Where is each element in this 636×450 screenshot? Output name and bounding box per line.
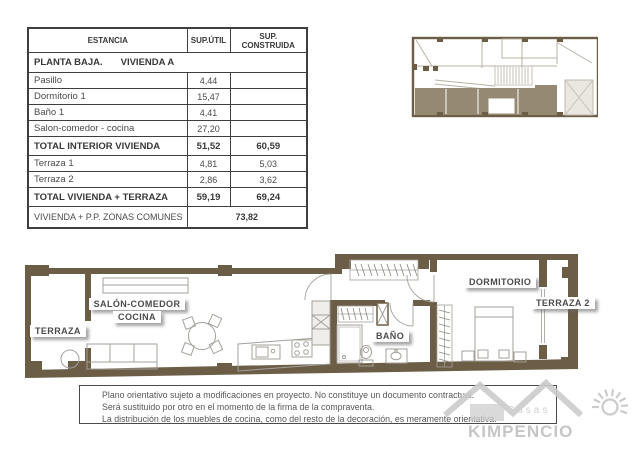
table-row: Salon-comedor - cocina 27,20 [28,121,307,137]
label-salon-line1: SALÓN-COMEDOR [89,298,186,310]
document-page: ESTANCIA SUP.ÚTIL SUP. CONSTRUIDA PLANTA… [0,0,636,450]
sup-util-cell: 15,47 [187,89,230,105]
sup-construida-cell [230,105,307,121]
sup-util-cell: 59,19 [187,188,230,207]
section-title-right: VIVIENDA A [121,57,175,68]
sofa [87,344,157,369]
bedroom-wardrobe [437,305,452,367]
hall-wardrobe-lower [338,306,373,322]
col-header-sup-util: SUP.ÚTIL [187,28,230,53]
sup-util-cell: 27,20 [187,121,230,137]
bathroom-door [390,303,413,326]
room-label-cell: Dormitorio 1 [28,89,187,105]
hall-wardrobe-top [350,260,418,280]
shower [337,325,362,363]
washbasin [386,349,407,363]
room-label-cell: Terraza 2 [28,172,187,188]
living-room-door [305,274,331,300]
shaft [377,303,388,325]
sup-construida-cell [230,121,307,137]
label-bano: BAÑO [371,330,409,342]
area-table: ESTANCIA SUP.ÚTIL SUP. CONSTRUIDA PLANTA… [27,27,308,229]
sup-util-cell: 4,44 [187,73,230,89]
table-row: Pasillo 4,44 [28,73,307,89]
nightstand [462,351,474,361]
disclaimer-line-3: La distribución de los muebles de cocina… [102,413,552,425]
room-label-cell: Salon-comedor - cocina [28,121,187,137]
section-title-left: PLANTA BAJA. [34,57,103,68]
table-row: TOTAL VIVIENDA + TERRAZA 59,19 69,24 [28,188,307,207]
room-label-cell: Baño 1 [28,105,187,121]
sup-construida-cell [230,73,307,89]
sup-construida-cell [230,89,307,105]
room-label-cell: TOTAL INTERIOR VIVIENDA [28,137,187,156]
room-label-cell: TOTAL VIVIENDA + TERRAZA [28,188,187,207]
table-row: Terraza 1 4,81 5,03 [28,156,307,172]
sup-construida-cell: 69,24 [230,188,307,207]
dining-table [182,314,223,355]
key-plan-highlighted-unit [415,85,557,115]
floor-plan-furniture [61,278,526,371]
sup-util-cell: 4,41 [187,105,230,121]
label-dormitorio: DORMITORIO [464,276,536,288]
label-terraza1: TERRAZA [30,325,86,337]
sup-util-cell: 51,52 [187,137,230,156]
key-plan-patio [565,80,593,115]
table-row: TOTAL INTERIOR VIVIENDA 51,52 60,59 [28,137,307,156]
label-terraza2: TERRAZA 2 [531,297,595,309]
sideboard [103,278,188,293]
bed [475,307,513,361]
stove [292,340,312,357]
bedroom-door [407,275,434,302]
kitchen-tall-units [312,301,330,345]
footer-value: 73,82 [187,207,307,229]
room-label-cell: Pasillo [28,73,187,89]
table-header-row: ESTANCIA SUP.ÚTIL SUP. CONSTRUIDA [28,28,307,53]
sink-icon [271,349,275,353]
sup-construida-cell: 5,03 [230,156,307,172]
section-title: PLANTA BAJA.VIVIENDA A [28,53,307,73]
disclaimer-box: Plano orientativo sujeto a modificacione… [79,385,557,424]
label-salon-line2: COCINA [113,311,161,323]
table-row: Terraza 2 2,86 3,62 [28,172,307,188]
sup-construida-cell: 60,59 [230,137,307,156]
col-header-estancia: ESTANCIA [28,28,187,53]
footer-label: VIVIENDA + P.P. ZONAS COMUNES [28,207,187,229]
sup-util-cell: 4,81 [187,156,230,172]
col-header-sup-construida: SUP. CONSTRUIDA [230,28,307,53]
table-row: Baño 1 4,41 [28,105,307,121]
table-row: Dormitorio 1 15,47 [28,89,307,105]
disclaimer-line-1: Plano orientativo sujeto a modificacione… [102,389,552,401]
table-footer-row: VIVIENDA + P.P. ZONAS COMUNES 73,82 [28,207,307,229]
building-key-plan [406,36,598,120]
sup-construida-cell: 3,62 [230,172,307,188]
room-label-cell: Terraza 1 [28,156,187,172]
disclaimer-line-2: Será sustituido por otro en el momento d… [102,401,552,413]
sup-util-cell: 2,86 [187,172,230,188]
table-section-row: PLANTA BAJA.VIVIENDA A [28,53,307,73]
label-salon-comedor-cocina: SALÓN-COMEDOR COCINA [92,298,182,323]
